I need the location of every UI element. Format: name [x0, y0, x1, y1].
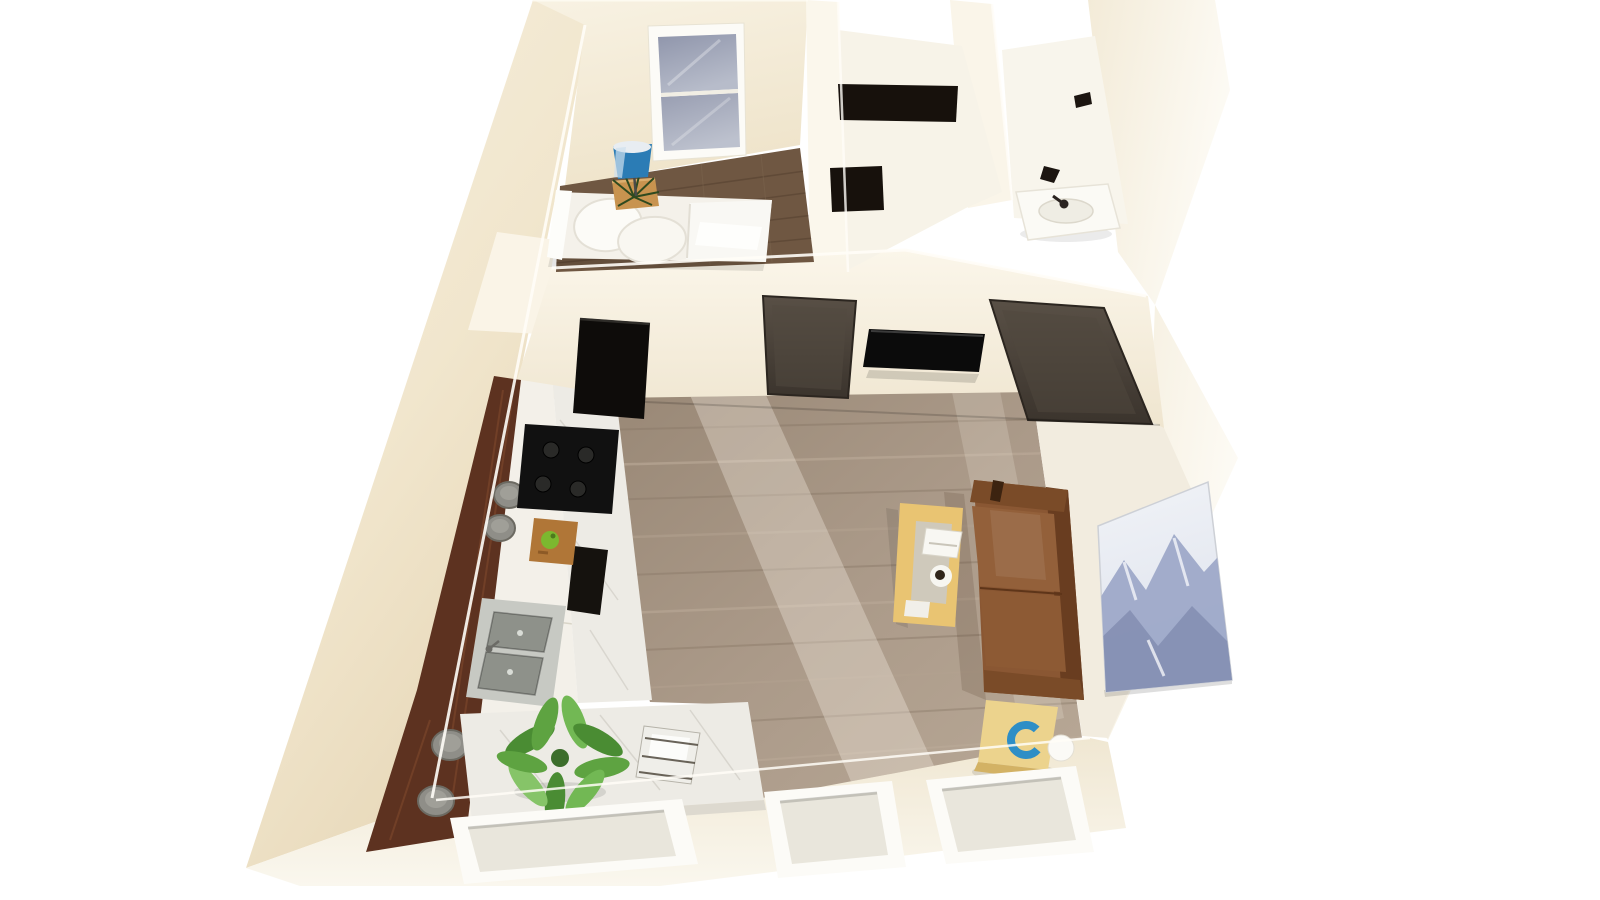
sofa-cushion-2 [980, 590, 1066, 672]
cooktop: Black cooktop with burners [517, 424, 619, 514]
coffee-table: Yellow coffee table with tray and cup [886, 503, 963, 628]
window-b [926, 766, 1094, 864]
sink-drain-2 [507, 669, 513, 675]
sofa: Brown leather sofa [944, 480, 1084, 700]
wardrobe-shelf-top [838, 84, 958, 122]
door-left-panel [772, 305, 847, 390]
stool-2 [485, 515, 515, 541]
window-a-recess [780, 792, 888, 864]
coffee-cup [935, 570, 945, 580]
bed-folded-blanket [695, 222, 762, 250]
plant-center [551, 749, 569, 767]
cutting-board-group: Cutting board with green apple [529, 518, 578, 565]
window-a [764, 781, 906, 878]
apple [541, 531, 559, 549]
kitchen-sink: Stainless double basin sink [466, 598, 566, 707]
bedroom-window: Window with gray glass [648, 23, 746, 161]
wardrobe-shelf-low [830, 166, 884, 212]
coffee-table-tray [922, 528, 962, 558]
side-table-top [978, 700, 1058, 770]
coffee-table-card [904, 600, 930, 618]
apple-stem [551, 534, 556, 539]
sofa-sheen [990, 510, 1046, 580]
stool-1-top [500, 486, 518, 500]
floorplan-render: 3D top-down rendering of a studio apartm… [0, 0, 1600, 900]
stool-4 [418, 786, 454, 816]
board-handle [538, 552, 548, 553]
sink-drain-1 [517, 630, 523, 636]
stool-2-top [491, 519, 509, 533]
refrigerator: Black refrigerator [573, 318, 650, 419]
floorplan-render-stage: 3D top-down rendering of a studio apartm… [0, 0, 1600, 900]
